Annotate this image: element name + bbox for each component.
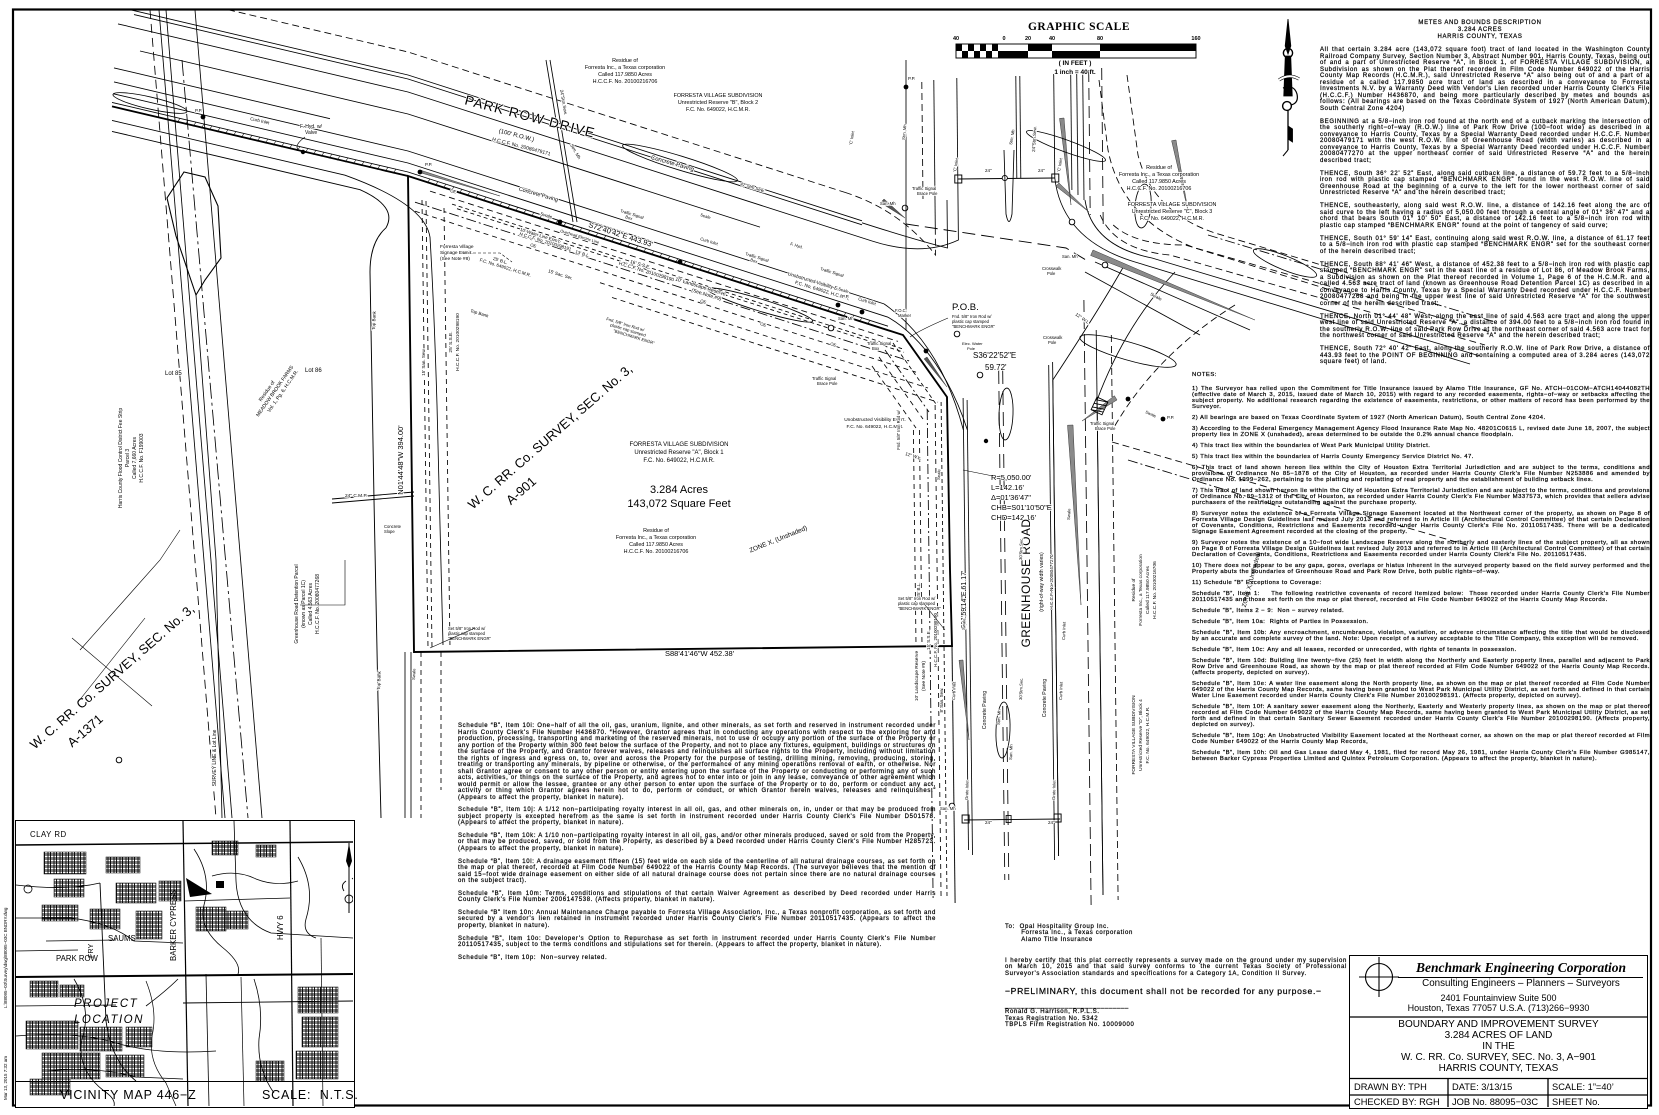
svg-text:H.C.C.F. No. 20100216706: H.C.C.F. No. 20100216706 [1152,561,1158,619]
svg-text:Concrete Paving: Concrete Paving [1042,679,1048,717]
svg-text:W. C. RR. Co. SURVEY, SEC. No.: W. C. RR. Co. SURVEY, SEC. No. 3, [465,361,635,512]
svg-text:SURVEY LINE & Lot Line: SURVEY LINE & Lot Line [212,729,218,786]
svg-text:59.72': 59.72' [985,363,1007,372]
svg-text:FORRESTA VILLAGE SUBDIVISION: FORRESTA VILLAGE SUBDIVISION [1128,202,1217,208]
svg-text:R=5,050.00': R=5,050.00' [991,473,1032,482]
svg-text:F. Hyd.: F. Hyd. [790,241,804,250]
svg-text:10' Landscape Reserve: 10' Landscape Reserve [914,651,920,702]
svg-text:'C' Inlet: 'C' Inlet [952,157,959,172]
svg-text:Unrestricted Reserve "C", Bloc: Unrestricted Reserve "C", Block 3 [1132,209,1213,215]
svg-text:Called 4.563 Acres: Called 4.563 Acres [308,583,314,625]
svg-text:(See Note #8): (See Note #8) [440,256,470,262]
svg-text:143,072 Square Feet: 143,072 Square Feet [627,498,730,510]
svg-text:Seale: Seale [936,468,941,480]
svg-text:Residue of: Residue of [643,528,669,534]
svg-text:P.O.B.: P.O.B. [952,302,979,313]
svg-text:OE: OE [760,321,767,328]
svg-text:30'Stm.Sec.: 30'Stm.Sec. [1018,537,1024,560]
svg-text:San. Mh: San. Mh [880,201,896,206]
svg-text:8' San. Sew.: 8' San. Sew. [939,688,944,713]
svg-text:Concrete Paving: Concrete Paving [518,187,559,204]
svg-text:Slope: Slope [384,529,395,534]
svg-text:Parcel 3: Parcel 3 [125,449,131,468]
svg-text:Valve: Valve [305,130,317,136]
svg-text:0: 0 [1002,36,1005,42]
svg-text:Stm. Mh: Stm. Mh [901,123,907,140]
svg-text:Forresta Inc., a Texas corpora: Forresta Inc., a Texas corporation [1119,172,1199,178]
svg-text:"BENCHMARK ENGR": "BENCHMARK ENGR" [898,606,942,611]
svg-text:GRAPHIC SCALE: GRAPHIC SCALE [1028,21,1130,33]
svg-text:H.C.C.F. No. 20100216706: H.C.C.F. No. 20100216706 [593,79,658,85]
svg-text:P.P.: P.P. [1167,415,1174,420]
svg-text:"BENCHMARK ENGR": "BENCHMARK ENGR" [448,636,492,641]
svg-text:S36'22'52"E: S36'22'52"E [973,351,1016,360]
svg-text:Fnd. 5/8" Iron Rod w/: Fnd. 5/8" Iron Rod w/ [896,409,901,449]
svg-text:Forresta Inc., a Texas corpora: Forresta Inc., a Texas corporation [616,535,696,541]
svg-text:25' S.S.E.: 25' S.S.E. [448,331,454,352]
svg-text:H.C.C.F. No. F199003: H.C.C.F. No. F199003 [139,433,145,482]
svg-text:Seale: Seale [700,212,712,220]
svg-text:Brace Pole: Brace Pole [817,381,838,386]
svg-text:Brace Pole: Brace Pole [917,191,938,196]
svg-text:Unrestricted Reserve "B", Bloc: Unrestricted Reserve "B", Block 2 [678,100,758,106]
svg-text:S88'41'46"W 452.38': S88'41'46"W 452.38' [665,649,735,658]
svg-text:Curb Inlet: Curb Inlet [250,116,271,125]
svg-text:Unrestricted Reserve "A", Bloc: Unrestricted Reserve "A", Block 1 [634,450,724,456]
svg-text:H.C.C.F. No. 20100216706: H.C.C.F. No. 20100216706 [1127,186,1192,192]
svg-text:12" W.L.: 12" W.L. [1074,312,1091,326]
svg-text:OE: OE [700,298,707,305]
svg-text:Swale: Swale [1145,409,1158,418]
svg-text:FORRESTA VILLAGE SUBDIVISION: FORRESTA VILLAGE SUBDIVISION [674,93,763,99]
svg-text:Stm. Mh: Stm. Mh [569,143,582,160]
svg-text:Curb Inlet: Curb Inlet [951,681,957,700]
svg-text:L=142.16': L=142.16' [991,483,1024,492]
svg-text:Signage Esm`t.: Signage Esm`t. [440,250,473,256]
svg-text:San. Mh: San. Mh [940,806,956,811]
svg-text:Stm. Mh: Stm. Mh [1008,128,1016,145]
svg-text:Top Bank: Top Bank [371,310,377,330]
svg-text:24"Stm.Sew.: 24"Stm.Sew. [1031,126,1037,152]
svg-text:Curb Inlet: Curb Inlet [858,296,878,306]
svg-text:Pole: Pole [1048,340,1057,345]
svg-text:Forresta Inc., a Texas corpora: Forresta Inc., a Texas corporation [585,65,665,71]
svg-text:(known as Parcel 1C): (known as Parcel 1C) [301,580,307,628]
svg-text:H.C.C.F. No. 20080477268: H.C.C.F. No. 20080477268 [315,574,321,634]
svg-text:24"Stm.Sew.: 24"Stm.Sew. [559,89,568,115]
svg-text:15' Sac. Ser.: 15' Sac. Ser. [548,268,574,280]
svg-text:Lot 85: Lot 85 [165,371,182,377]
svg-text:Brace Pole: Brace Pole [1095,426,1116,431]
svg-text:Swale: Swale [411,668,416,680]
svg-text:N01'44'48"W 394.00': N01'44'48"W 394.00' [396,425,405,495]
svg-text:Called 117.9850 Acres: Called 117.9850 Acres [598,72,652,78]
svg-text:24": 24" [1048,820,1055,825]
svg-text:H.C.C.F. No. 20100298190: H.C.C.F. No. 20100298190 [455,313,461,371]
svg-text:20: 20 [1025,36,1031,42]
svg-text:San. Mh: San. Mh [1008,744,1014,760]
svg-text:Residue of: Residue of [1146,165,1172,171]
svg-text:(right-of-way width varies): (right-of-way width varies) [1039,552,1045,612]
svg-text:'C' Inlet: 'C' Inlet [848,130,855,145]
svg-text:Stm. Mh: Stm. Mh [996,709,1002,725]
svg-text:Greenhouse Road Detention Parc: Greenhouse Road Detention Parcel [294,564,300,643]
svg-text:San. Mh: San. Mh [1062,254,1078,259]
svg-text:Concrete Paving: Concrete Paving [982,691,988,729]
svg-text:F.C. No. 649022, H.C.M.R.: F.C. No. 649022, H.C.M.R. [686,107,750,113]
svg-text:3.284 Acres: 3.284 Acres [650,484,709,496]
svg-text:P.P.: P.P. [842,294,849,299]
svg-text:Traffic Signal: Traffic Signal [820,266,845,278]
svg-text:Lot 86: Lot 86 [305,368,322,374]
svg-text:40: 40 [953,36,959,42]
svg-text:1 inch = 40 ft.: 1 inch = 40 ft. [1054,69,1096,76]
svg-text:80: 80 [1097,36,1103,42]
svg-text:P.P.: P.P. [195,108,202,113]
svg-text:Top Bank: Top Bank [470,308,490,318]
svg-text:24": 24" [1038,168,1045,173]
svg-text:Forresta Inc., a Texas corpora: Forresta Inc., a Texas corporation [1138,554,1144,626]
svg-text:OE: OE [530,242,537,249]
svg-text:160: 160 [1191,36,1200,42]
svg-text:Harris County Flood Control Di: Harris County Flood Control District Fee… [118,408,124,509]
svg-text:Called 117.9850 Acres: Called 117.9850 Acres [629,542,683,548]
svg-text:Called 117.9850 Acres: Called 117.9850 Acres [1145,565,1151,614]
svg-text:F.C. No. 649022, H.C.M.R.: F.C. No. 649022, H.C.M.R. [1140,216,1204,222]
svg-text:Called 7,660 Acres: Called 7,660 Acres [132,437,138,479]
svg-text:PARK ROW DRIVE: PARK ROW DRIVE [463,93,597,141]
svg-text:Pole: Pole [967,346,976,351]
svg-text:OE: OE [450,188,457,194]
svg-text:Forresta Village: Forresta Village [440,244,474,250]
svg-text:Grate Inlet: Grate Inlet [1051,779,1057,800]
svg-text:24" C.M.P.: 24" C.M.P. [345,493,367,499]
svg-text:(See Note #9): (See Note #9) [921,661,927,691]
svg-text:Residue of: Residue of [612,58,638,64]
svg-text:24": 24" [985,820,992,825]
svg-text:Swale: Swale [1066,508,1071,520]
svg-text:Pole: Pole [1047,271,1056,276]
svg-text:F.C. No. 649022, H.C.M.R.: F.C. No. 649022, H.C.M.R. [1145,706,1151,763]
svg-text:13' B.L.: 13' B.L. [575,249,591,258]
svg-text:Called 117.9850 Acres: Called 117.9850 Acres [1132,179,1186,185]
svg-text:P.P.: P.P. [908,76,915,81]
svg-text:( IN FEET ): ( IN FEET ) [1059,60,1092,67]
svg-text:42"Stm.Sew.: 42"Stm.Sew. [740,181,766,193]
svg-text:H.C.C.F. No. 20100216706: H.C.C.F. No. 20100216706 [624,549,689,555]
svg-text:H.C.C.F. No. 20080477270: H.C.C.F. No. 20080477270 [1049,554,1054,610]
svg-text:15' S.S.E.: 15' S.S.E. [926,630,931,650]
svg-text:Marker: Marker [898,313,912,318]
svg-text:Residue of: Residue of [1131,578,1137,602]
svg-text:Curb Inlet: Curb Inlet [1058,681,1064,700]
svg-text:Top Bank: Top Bank [376,670,382,690]
svg-text:40: 40 [1049,36,1055,42]
svg-text:W. C. RR. Co. SURVEY, SEC. No.: W. C. RR. Co. SURVEY, SEC. No. 3, [27,601,197,752]
svg-text:Grate Inlet: Grate Inlet [964,779,970,800]
svg-text:ZONE X, (Unshaded): ZONE X, (Unshaded) [748,525,808,555]
svg-text:24": 24" [985,168,992,173]
svg-text:Box: Box [872,346,880,351]
svg-text:Box: Box [625,214,634,221]
svg-text:Unrestricted Reserve "D", Bloc: Unrestricted Reserve "D", Block 4 [1138,699,1144,771]
svg-text:F.C. No. 649022, H.C.M.R.: F.C. No. 649022, H.C.M.R. [846,424,903,430]
svg-text:MEADOW BROOK FARMS: MEADOW BROOK FARMS [255,364,295,418]
svg-text:Δ=01'36'47": Δ=01'36'47" [991,493,1031,502]
svg-text:Curb Inlet: Curb Inlet [700,236,720,246]
svg-text:15' San. Sew.: 15' San. Sew. [421,348,426,375]
svg-text:CHB=S01'10'50"E: CHB=S01'10'50"E [991,503,1052,512]
svg-text:"BENCHMARK ENGR": "BENCHMARK ENGR" [952,324,996,329]
svg-text:P.P.: P.P. [425,162,432,167]
svg-text:FORRESTA VILLAGE SUBDIVISION: FORRESTA VILLAGE SUBDIVISION [630,442,729,448]
svg-text:'C' Inlet: 'C' Inlet [1056,157,1063,172]
svg-text:Curb Inlet: Curb Inlet [1061,621,1067,640]
svg-text:San. Mh: San. Mh [838,316,854,321]
svg-text:F.C. No. 649022, H.C.M.R.: F.C. No. 649022, H.C.M.R. [643,458,715,464]
svg-text:FORRESTA VILLAGE SUBDIVISION: FORRESTA VILLAGE SUBDIVISION [1131,695,1137,775]
svg-text:Swale: Swale [961,618,966,630]
svg-text:30'Stm.Sec.: 30'Stm.Sec. [1018,677,1024,700]
